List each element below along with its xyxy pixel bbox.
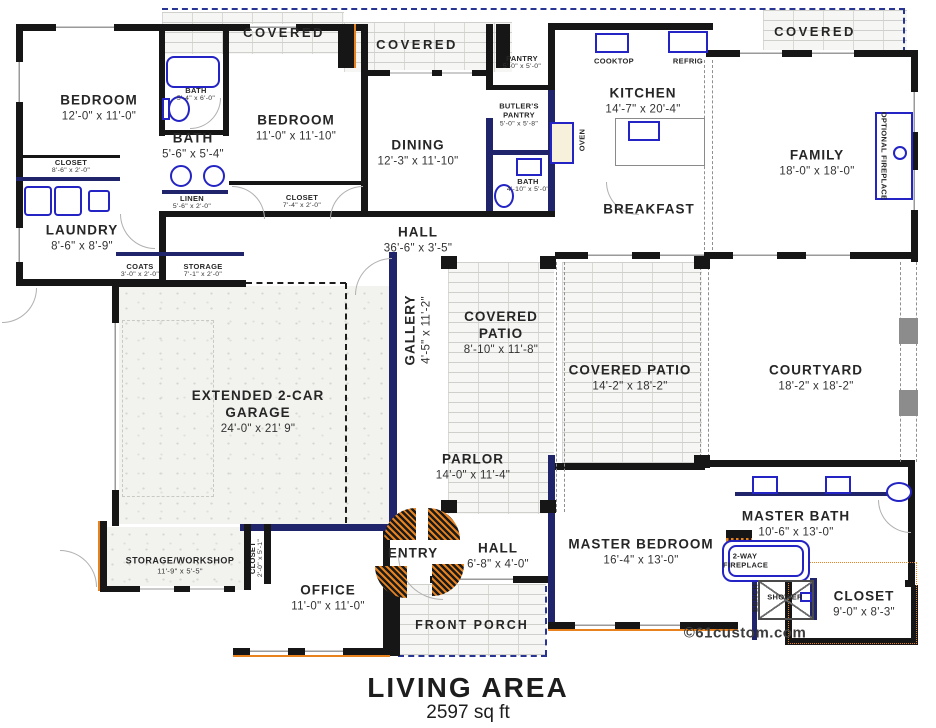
window — [575, 622, 615, 629]
room-label-pantry: PANTRY 5'-0" x 5'-0" — [503, 54, 541, 72]
room-name: STORAGE — [183, 262, 222, 271]
room-dims: 18'-0" x 18'-0" — [779, 164, 854, 178]
room-label-storage-hall: STORAGE 7'-1" x 2'-0" — [183, 262, 222, 280]
porch-column — [338, 24, 354, 68]
room-dims: 5'-6" x 2'-0" — [173, 203, 211, 211]
patio-bay-line — [708, 262, 709, 462]
window — [588, 252, 632, 259]
window — [140, 586, 174, 592]
room-dims: 5'-0" x 5'-8" — [491, 120, 547, 128]
room-name: MASTER BATH — [742, 508, 850, 525]
patio-column — [694, 256, 710, 269]
front-porch-line-bottom — [398, 655, 547, 657]
room-name: CLOSET — [833, 588, 895, 605]
patio-column — [694, 455, 710, 468]
room-label-butlers-pantry: BUTLER'S PANTRY 5'-0" x 5'-8" — [491, 101, 547, 128]
room-label-bedroom2: BEDROOM 11'-0" x 11'-10" — [256, 112, 336, 143]
window — [250, 648, 288, 655]
room-label-bath1: BATH 5'-6" x 5'-4" — [162, 130, 224, 161]
room-dims: 11'-9" x 5'-5" — [126, 567, 235, 576]
room-name: MASTER BEDROOM — [568, 536, 713, 553]
room-dims: 9'-0" x 8'-3" — [833, 605, 895, 619]
wall — [112, 490, 119, 526]
room-dims: 10'-6" x 13'-0" — [742, 525, 850, 539]
door-arc — [60, 550, 97, 587]
garage-ceiling-line — [345, 283, 347, 523]
room-label-closet2: CLOSET 7'-4" x 2'-0" — [283, 193, 321, 211]
room-name: PARLOR — [436, 451, 510, 468]
label-covered-mid: COVERED — [376, 37, 458, 53]
patio-bay-line — [564, 262, 565, 512]
room-name: CLOSET — [52, 158, 90, 167]
room-label-master-bedroom: MASTER BEDROOM 16'-4" x 13'-0" — [568, 536, 713, 567]
window — [16, 228, 23, 262]
front-porch-line-right — [545, 586, 547, 656]
label-optional-fireplace: OPTIONAL FIREPLACE — [879, 112, 888, 201]
room-name: KITCHEN — [605, 85, 680, 102]
window — [733, 252, 777, 259]
room-name: OVEN — [577, 129, 586, 151]
room-label-hall1: HALL 36'-6" x 3'-5" — [384, 224, 453, 255]
courtyard-column — [899, 390, 918, 416]
wall-navy — [548, 455, 555, 630]
accent-line — [98, 521, 100, 591]
label-shower: SHOWER — [767, 592, 803, 601]
room-dims: 6'-8" x 4'-0" — [467, 557, 529, 571]
plan-title: LIVING AREA — [367, 672, 568, 704]
wall — [486, 85, 555, 90]
window — [740, 50, 782, 57]
wall — [229, 181, 366, 185]
label-bench: BENCH — [750, 584, 759, 612]
window — [390, 70, 432, 76]
room-dims: 5'-6" x 5'-4" — [162, 147, 224, 161]
wall — [368, 211, 488, 217]
room-dims: 8'-10" x 11'-8" — [456, 343, 546, 357]
door-arc — [232, 186, 265, 219]
patio-column — [441, 256, 457, 269]
courtyard-column — [899, 318, 918, 344]
label-oven: OVEN — [577, 129, 586, 151]
room-name: BEDROOM — [60, 92, 138, 109]
room-name: COURTYARD — [769, 362, 863, 379]
room-dims: 18'-2" x 18'-2" — [769, 379, 863, 393]
garage-door — [112, 323, 119, 490]
dining-bath-sink — [516, 158, 542, 176]
room-name: BUTLER'S PANTRY — [491, 101, 547, 120]
patio-column — [540, 500, 556, 513]
room-dims: 5'-0" x 5'-0" — [503, 63, 541, 71]
door-arc — [2, 288, 37, 323]
wall — [112, 280, 246, 287]
room-dims: 11'-0" x 11'-10" — [256, 129, 336, 143]
room-name: BEDROOM — [256, 112, 336, 129]
room-dims: 8'-6" x 2'-0" — [52, 167, 90, 175]
room-dims: 14'-0" x 11'-4" — [436, 468, 510, 482]
room-dims: 4'-5" x 11'-2" — [419, 295, 433, 366]
window — [305, 648, 343, 655]
wall — [223, 24, 229, 136]
room-label-closet1: CLOSET 8'-6" x 2'-0" — [52, 158, 90, 176]
window — [56, 24, 114, 31]
accent-line — [354, 24, 356, 68]
wall — [548, 24, 555, 90]
room-label-family: FAMILY 18'-0" x 18'-0" — [779, 147, 854, 178]
plan-area: 2597 sq ft — [426, 702, 509, 724]
closet-shelf — [16, 177, 120, 181]
room-dims: 12'-0" x 11'-0" — [60, 109, 138, 123]
cooktop — [595, 33, 629, 53]
washer — [24, 186, 52, 216]
patio-bay-line — [700, 262, 701, 462]
master-sink — [825, 476, 851, 494]
door-arc — [878, 500, 911, 533]
utility-sink — [88, 190, 110, 212]
room-label-linen: LINEN 5'-6" x 2'-0" — [173, 194, 211, 212]
room-name: HALL — [467, 540, 529, 557]
room-dims: 7'-4" x 2'-0" — [283, 202, 321, 210]
room-name: SHOWER — [767, 592, 803, 601]
room-name: OPTIONAL FIREPLACE — [879, 112, 888, 201]
room-label-coats: COATS 3'-0" x 2'-0" — [121, 262, 159, 280]
oven-cabinet — [550, 122, 574, 164]
room-dims: 16'-4" x 13'-0" — [568, 553, 713, 567]
window — [455, 576, 513, 583]
island-sink — [628, 121, 660, 141]
credit-text: ©61custom.com — [684, 625, 807, 642]
room-name: PANTRY — [503, 54, 541, 63]
room-name: HALL — [384, 224, 453, 241]
room-label-gallery: GALLERY 4'-5" x 11'-2" — [402, 295, 433, 366]
room-name: COVERED PATIO — [569, 362, 692, 379]
window — [640, 622, 680, 629]
label-covered-right: COVERED — [774, 24, 856, 40]
room-name: BENCH — [750, 584, 759, 612]
door-arc — [355, 258, 392, 295]
room-label-kitchen: KITCHEN 14'-7" x 20'-4" — [605, 85, 680, 116]
room-name: COVERED — [243, 25, 325, 41]
room-name: BATH — [507, 177, 549, 186]
room-dims: 2'-0" x 5'-1" — [257, 539, 265, 577]
room-name: COVERED PATIO — [456, 309, 546, 343]
room-name: BREAKFAST — [603, 202, 695, 219]
room-name: COVERED — [376, 37, 458, 53]
dryer — [54, 186, 82, 216]
label-refrig: REFRIG — [673, 56, 703, 65]
room-name: REFRIG — [673, 56, 703, 65]
window — [806, 252, 850, 259]
room-label-bedroom1: BEDROOM 12'-0" x 11'-0" — [60, 92, 138, 123]
room-name: CLOSET — [283, 193, 321, 202]
roof-overhang-line-top — [162, 8, 905, 10]
master-toilet — [886, 482, 912, 502]
window — [16, 62, 23, 102]
floor-plan: BEDROOM 12'-0" x 11'-0" BATH 5'-4" x 6'-… — [0, 0, 936, 728]
room-name: ENTRY — [388, 546, 438, 563]
room-label-laundry: LAUNDRY 8'-6" x 8'-9" — [46, 222, 119, 253]
refrigerator — [668, 31, 708, 53]
room-label-bath1-small: BATH 5'-4" x 6'-0" — [177, 86, 215, 104]
room-label-front-porch: FRONT PORCH — [415, 618, 529, 634]
room-name: LINEN — [173, 194, 211, 203]
entry-arc — [375, 566, 407, 598]
wall — [486, 24, 493, 88]
bath-sink — [170, 165, 192, 187]
accent-line — [233, 655, 390, 657]
room-name: COOKTOP — [594, 56, 634, 65]
room-label-breakfast: BREAKFAST — [603, 202, 695, 219]
room-dims: 11'-0" x 11'-0" — [291, 599, 365, 613]
courtyard-bay-line — [900, 262, 901, 462]
room-dims: 3'-0" x 2'-0" — [121, 271, 159, 279]
room-label-office: OFFICE 11'-0" x 11'-0" — [291, 582, 365, 613]
room-dims: 8'-6" x 8'-9" — [46, 239, 119, 253]
window — [812, 50, 854, 57]
room-label-garage: EXTENDED 2-CAR GARAGE 24'-0" x 21' 9" — [173, 388, 343, 436]
room-name: OFFICE — [291, 582, 365, 599]
room-name: BATH — [177, 86, 215, 95]
room-label-hall2: HALL 6'-8" x 4'-0" — [467, 540, 529, 571]
room-label-covered-patio1: COVERED PATIO 8'-10" x 11'-8" — [456, 309, 546, 357]
wall — [555, 463, 705, 470]
room-dims: 4'-10" x 5'-0" — [507, 186, 549, 194]
room-dims: 14'-7" x 20'-4" — [605, 102, 680, 116]
room-dims: 5'-4" x 6'-0" — [177, 95, 215, 103]
room-label-master-closet: CLOSET 9'-0" x 8'-3" — [833, 588, 895, 619]
room-name: EXTENDED 2-CAR GARAGE — [173, 388, 343, 422]
room-name: LAUNDRY — [46, 222, 119, 239]
wall-navy — [486, 118, 493, 215]
wall — [700, 460, 915, 467]
window — [442, 70, 472, 76]
door-arc — [330, 186, 363, 219]
label-two-way-fireplace: 2-WAY FIREPLACE — [723, 552, 767, 571]
room-label-entry: ENTRY — [388, 546, 438, 563]
room-dims: 36'-6" x 3'-5" — [384, 241, 453, 255]
room-dims: 12'-3" x 11'-10" — [377, 154, 458, 168]
courtyard-bay-line — [916, 262, 917, 462]
room-name: BATH — [162, 130, 224, 147]
wall — [486, 211, 555, 217]
master-sink — [752, 476, 778, 494]
wall-navy — [489, 150, 555, 155]
room-label-parlor: PARLOR 14'-0" x 11'-4" — [436, 451, 510, 482]
room-label-bath2: BATH 4'-10" x 5'-0" — [507, 177, 549, 195]
room-dims: 24'-0" x 21' 9" — [173, 422, 343, 436]
room-name: STORAGE/WORKSHOP — [126, 556, 235, 567]
roof-overhang-line-right — [903, 8, 905, 53]
wall — [112, 287, 119, 323]
kitchen-family-line — [712, 60, 713, 250]
room-label-covered-patio2: COVERED PATIO 14'-2" x 18'-2" — [569, 362, 692, 393]
label-covered-left: COVERED — [243, 25, 325, 41]
patio-bay-line — [556, 262, 557, 512]
garage-ceiling-line — [246, 282, 346, 284]
wall — [100, 521, 107, 591]
room-dims: 14'-2" x 18'-2" — [569, 379, 692, 393]
room-label-courtyard: COURTYARD 18'-2" x 18'-2" — [769, 362, 863, 393]
room-name: COATS — [121, 262, 159, 271]
room-label-office-closet: CLOSET 2'-0" x 5'-1" — [248, 539, 266, 577]
window — [190, 586, 224, 592]
room-name: DINING — [377, 137, 458, 154]
room-name: FRONT PORCH — [415, 618, 529, 634]
wall-navy — [116, 252, 244, 256]
label-cooktop: COOKTOP — [594, 56, 634, 65]
room-label-storage-workshop: STORAGE/WORKSHOP 11'-9" x 5'-5" — [126, 556, 235, 577]
room-dims: 7'-1" x 2'-0" — [183, 271, 222, 279]
room-label-dining: DINING 12'-3" x 11'-10" — [377, 137, 458, 168]
wall — [548, 23, 713, 30]
fireplace-detail — [893, 146, 907, 160]
patio-column — [540, 256, 556, 269]
room-name: COVERED — [774, 24, 856, 40]
bathtub — [166, 56, 220, 88]
wall — [159, 213, 166, 283]
room-name: CLOSET — [248, 539, 257, 577]
bath-sink — [203, 165, 225, 187]
door-arc — [120, 214, 155, 249]
room-name: 2-WAY FIREPLACE — [723, 552, 767, 571]
room-name: GALLERY — [402, 295, 419, 366]
toilet-tank — [162, 98, 170, 120]
room-name: FAMILY — [779, 147, 854, 164]
room-label-master-bath: MASTER BATH 10'-6" x 13'-0" — [742, 508, 850, 539]
